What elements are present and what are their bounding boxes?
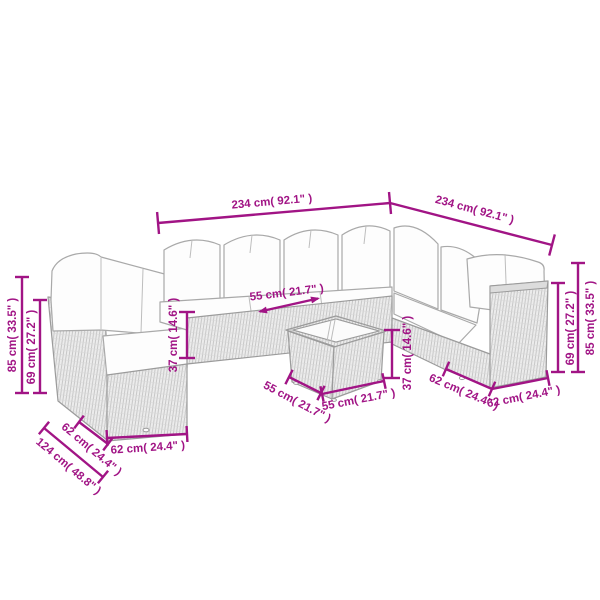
dim-right-back-height-label: 85 cm( 33.5" ) bbox=[585, 281, 597, 356]
dim-left-back-height-label: 85 cm( 33.5" ) bbox=[7, 298, 19, 373]
product-dimension-diagram: 234 cm( 92.1" ) 234 cm( 92.1" ) 85 cm( 3… bbox=[0, 0, 600, 600]
dim-back-row-width-label: 234 cm( 92.1" ) bbox=[231, 193, 313, 212]
dim-right-row-width-label: 234 cm( 92.1" ) bbox=[434, 194, 515, 227]
dim-seat-height-label: 37 cm( 14.6" ) bbox=[168, 298, 180, 373]
dim-right-seatback-height-label: 69 cm( 27.2" ) bbox=[565, 291, 577, 366]
screw-cap bbox=[143, 428, 149, 432]
dim-table-height-label: 37 cm( 14.6" ) bbox=[402, 316, 414, 391]
dim-right-seatback-height: 69 cm( 27.2" ) bbox=[551, 283, 577, 372]
right-arm-panel bbox=[490, 281, 548, 388]
back-cushion bbox=[164, 240, 220, 307]
dim-left-seatback-height: 69 cm( 27.2" ) bbox=[26, 300, 47, 393]
back-cushion bbox=[342, 226, 390, 294]
dim-left-seatback-height-label: 69 cm( 27.2" ) bbox=[26, 310, 38, 385]
dim-front-module-width-label: 62 cm( 24.4" ) bbox=[110, 440, 185, 457]
diagram-canvas: 234 cm( 92.1" ) 234 cm( 92.1" ) 85 cm( 3… bbox=[0, 0, 600, 600]
